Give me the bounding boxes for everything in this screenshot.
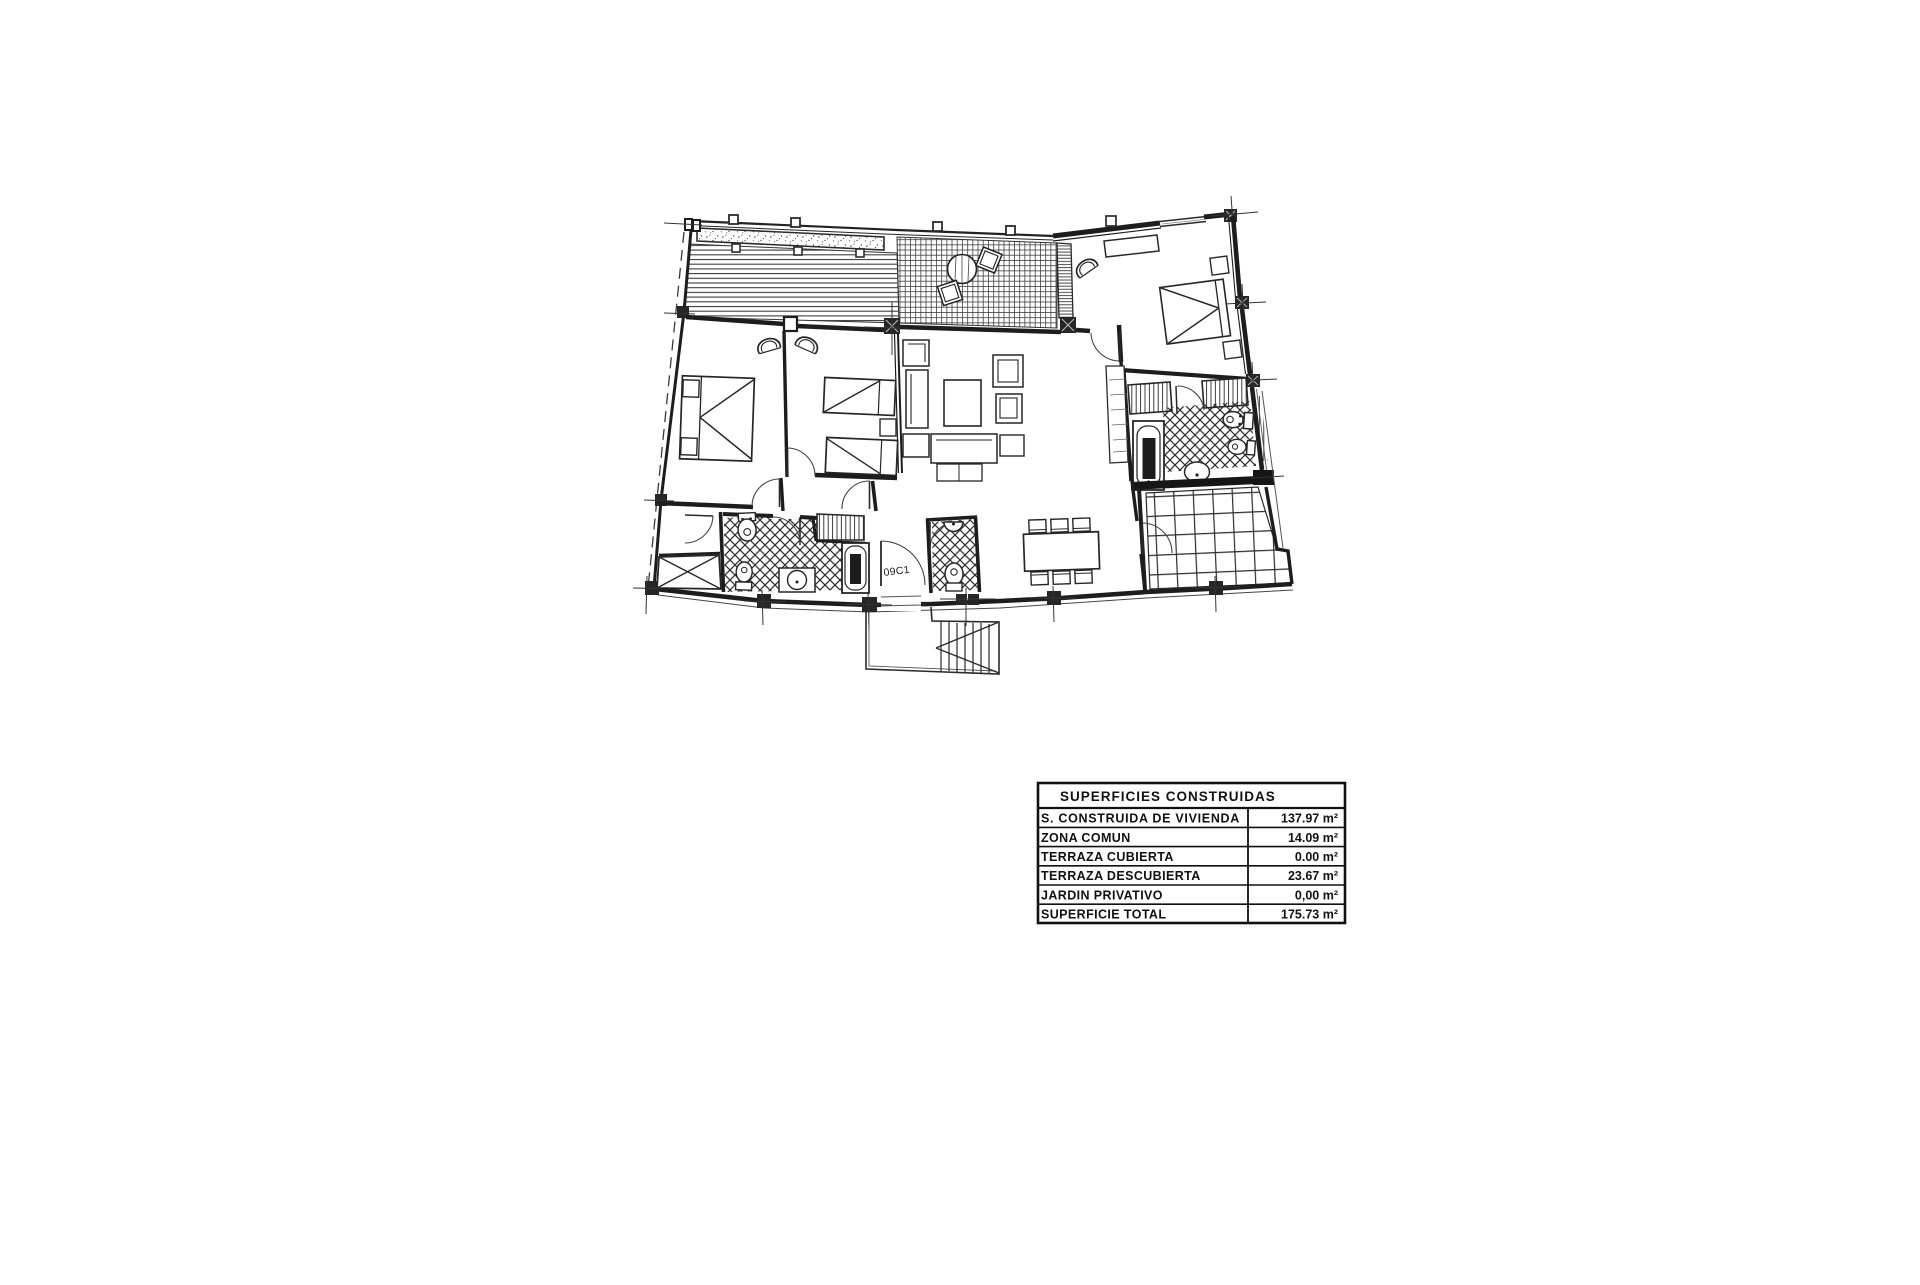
svg-text:TERRAZA CUBIERTA: TERRAZA CUBIERTA (1041, 850, 1174, 864)
svg-text:0.00 m²: 0.00 m² (1295, 850, 1338, 864)
svg-text:TERRAZA DESCUBIERTA: TERRAZA DESCUBIERTA (1041, 869, 1201, 883)
svg-text:JARDIN PRIVATIVO: JARDIN PRIVATIVO (1041, 888, 1163, 902)
svg-text:SUPERFICIE TOTAL: SUPERFICIE TOTAL (1041, 908, 1166, 922)
svg-text:ZONA COMUN: ZONA COMUN (1041, 831, 1131, 845)
svg-text:14.09 m²: 14.09 m² (1288, 831, 1338, 845)
svg-text:S. CONSTRUIDA DE VIVIENDA: S. CONSTRUIDA DE VIVIENDA (1041, 812, 1240, 826)
svg-text:23.67 m²: 23.67 m² (1288, 869, 1338, 883)
svg-text:SUPERFICIES CONSTRUIDAS: SUPERFICIES CONSTRUIDAS (1060, 789, 1276, 804)
svg-text:175.73 m²: 175.73 m² (1281, 908, 1338, 922)
svg-text:137.97 m²: 137.97 m² (1281, 812, 1338, 826)
svg-text:0,00 m²: 0,00 m² (1295, 888, 1338, 902)
